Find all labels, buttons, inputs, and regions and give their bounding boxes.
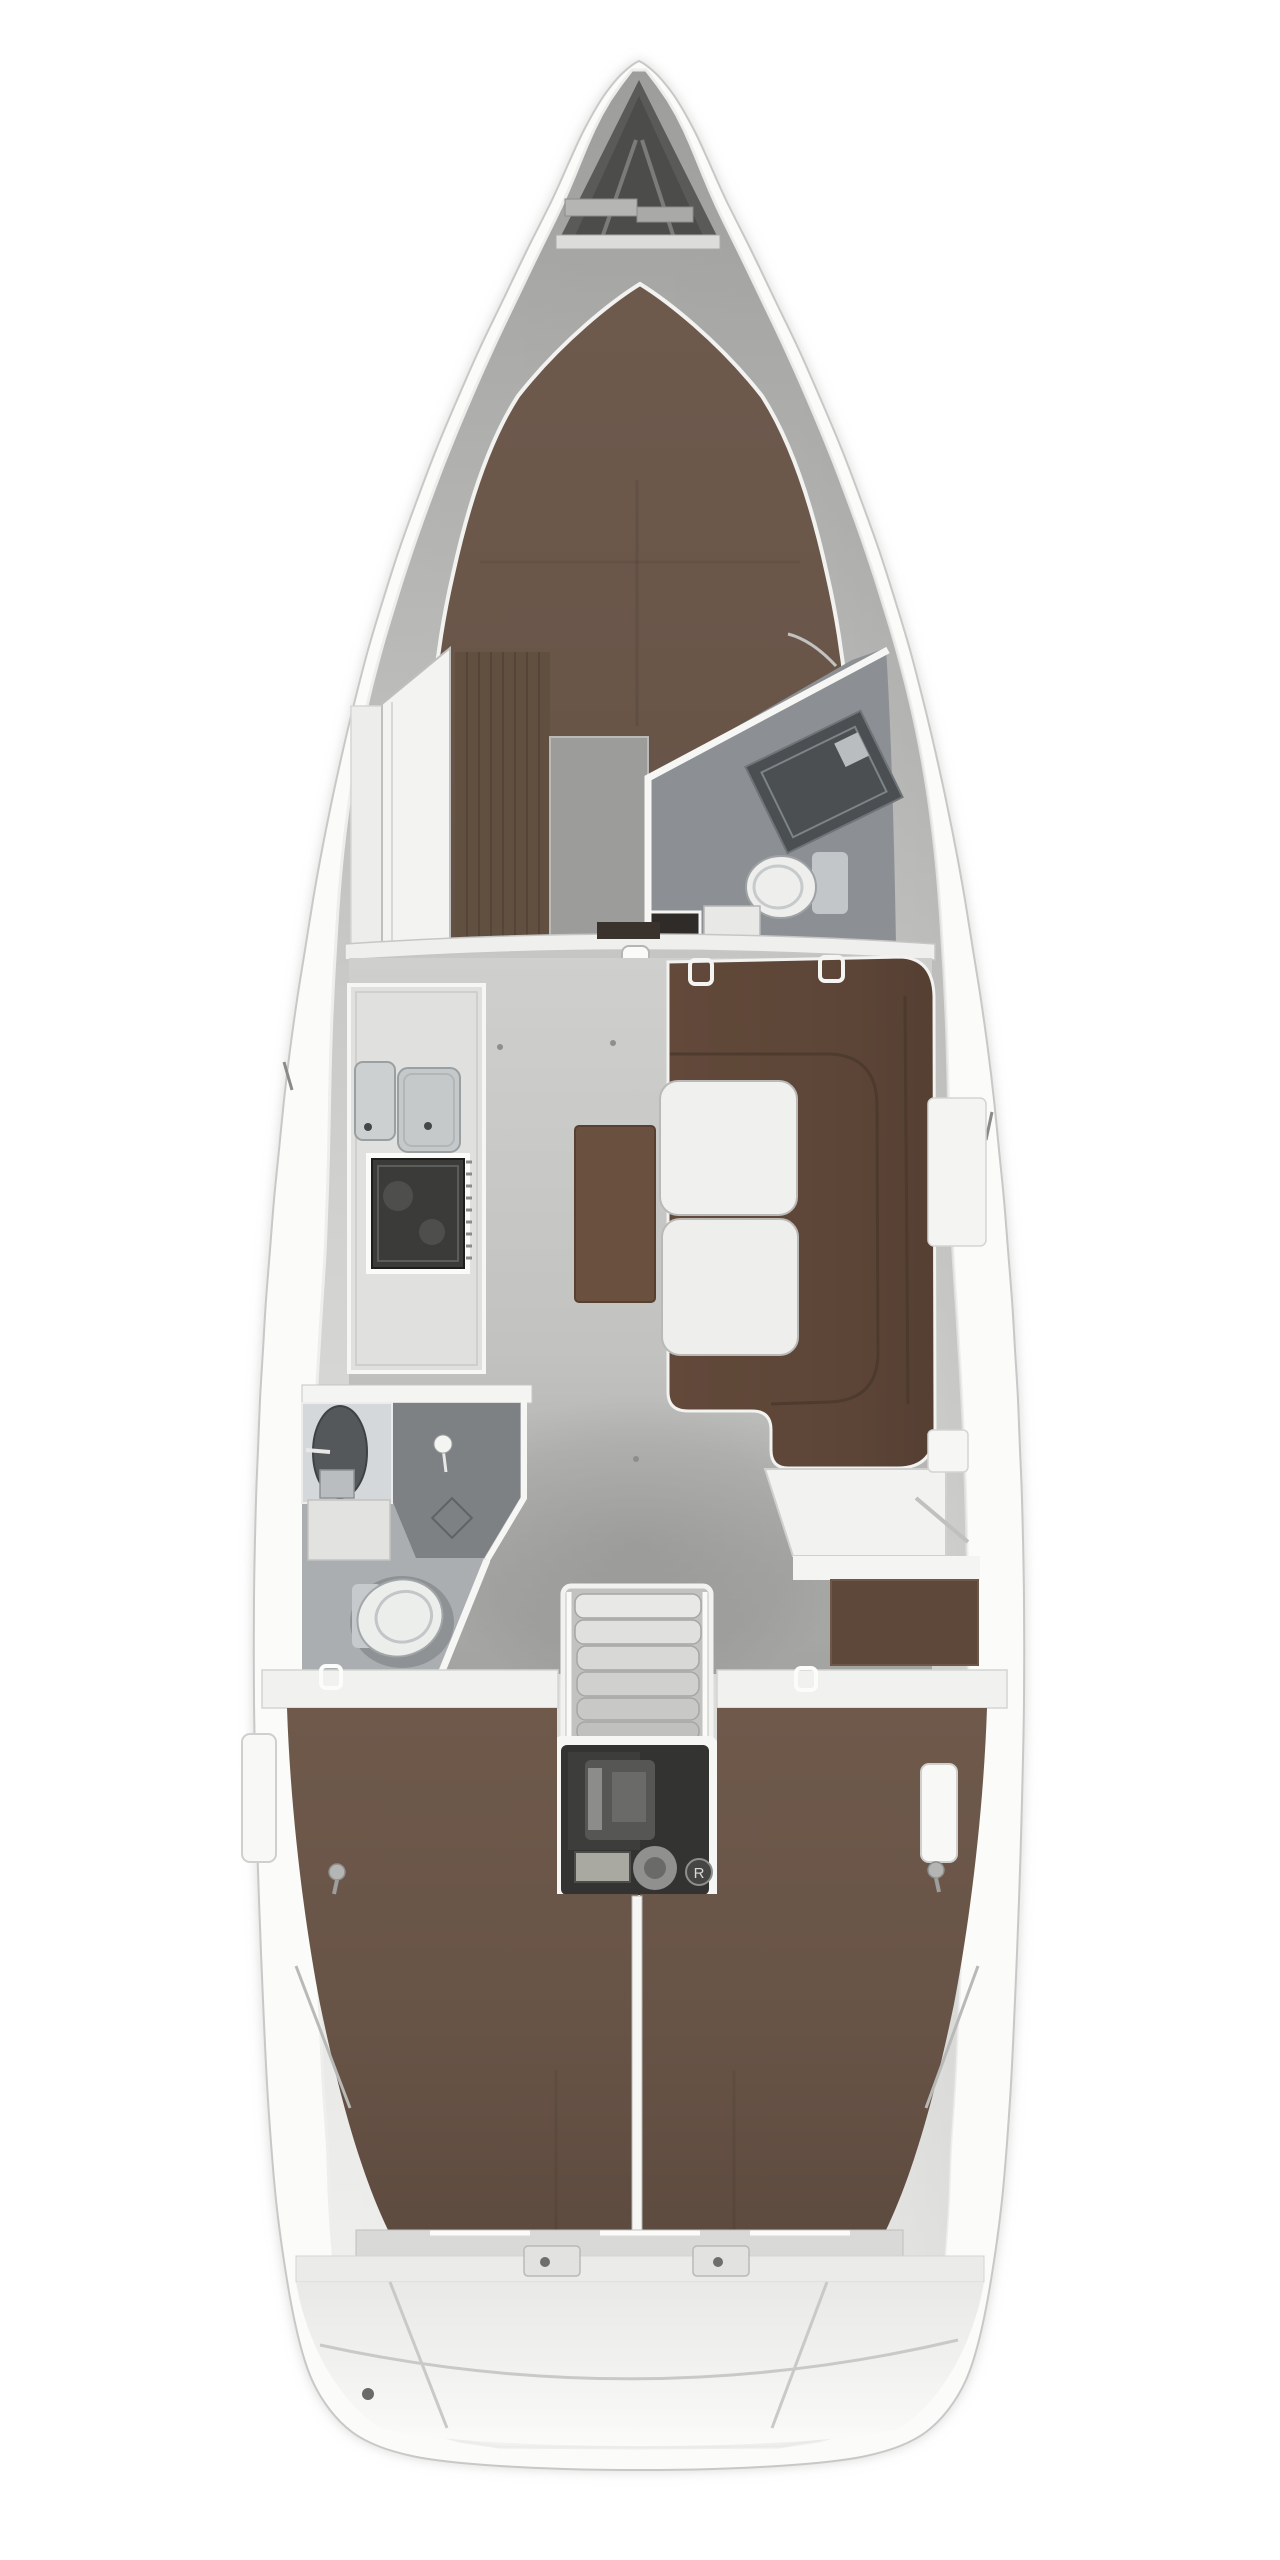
svg-text:R: R [694, 1865, 705, 1882]
